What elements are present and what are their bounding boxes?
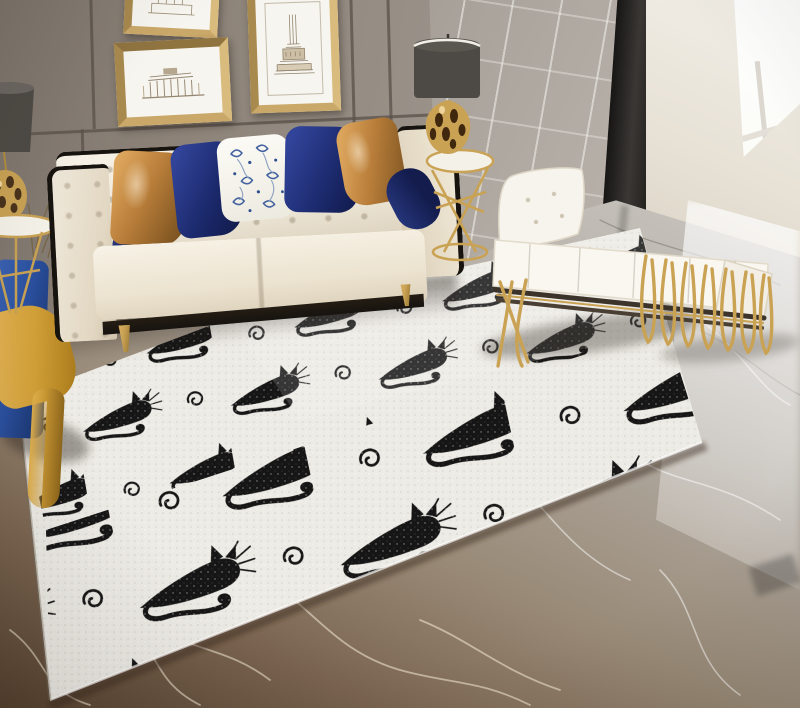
living-room-photo [0,0,800,708]
photo-vignette [0,0,800,708]
